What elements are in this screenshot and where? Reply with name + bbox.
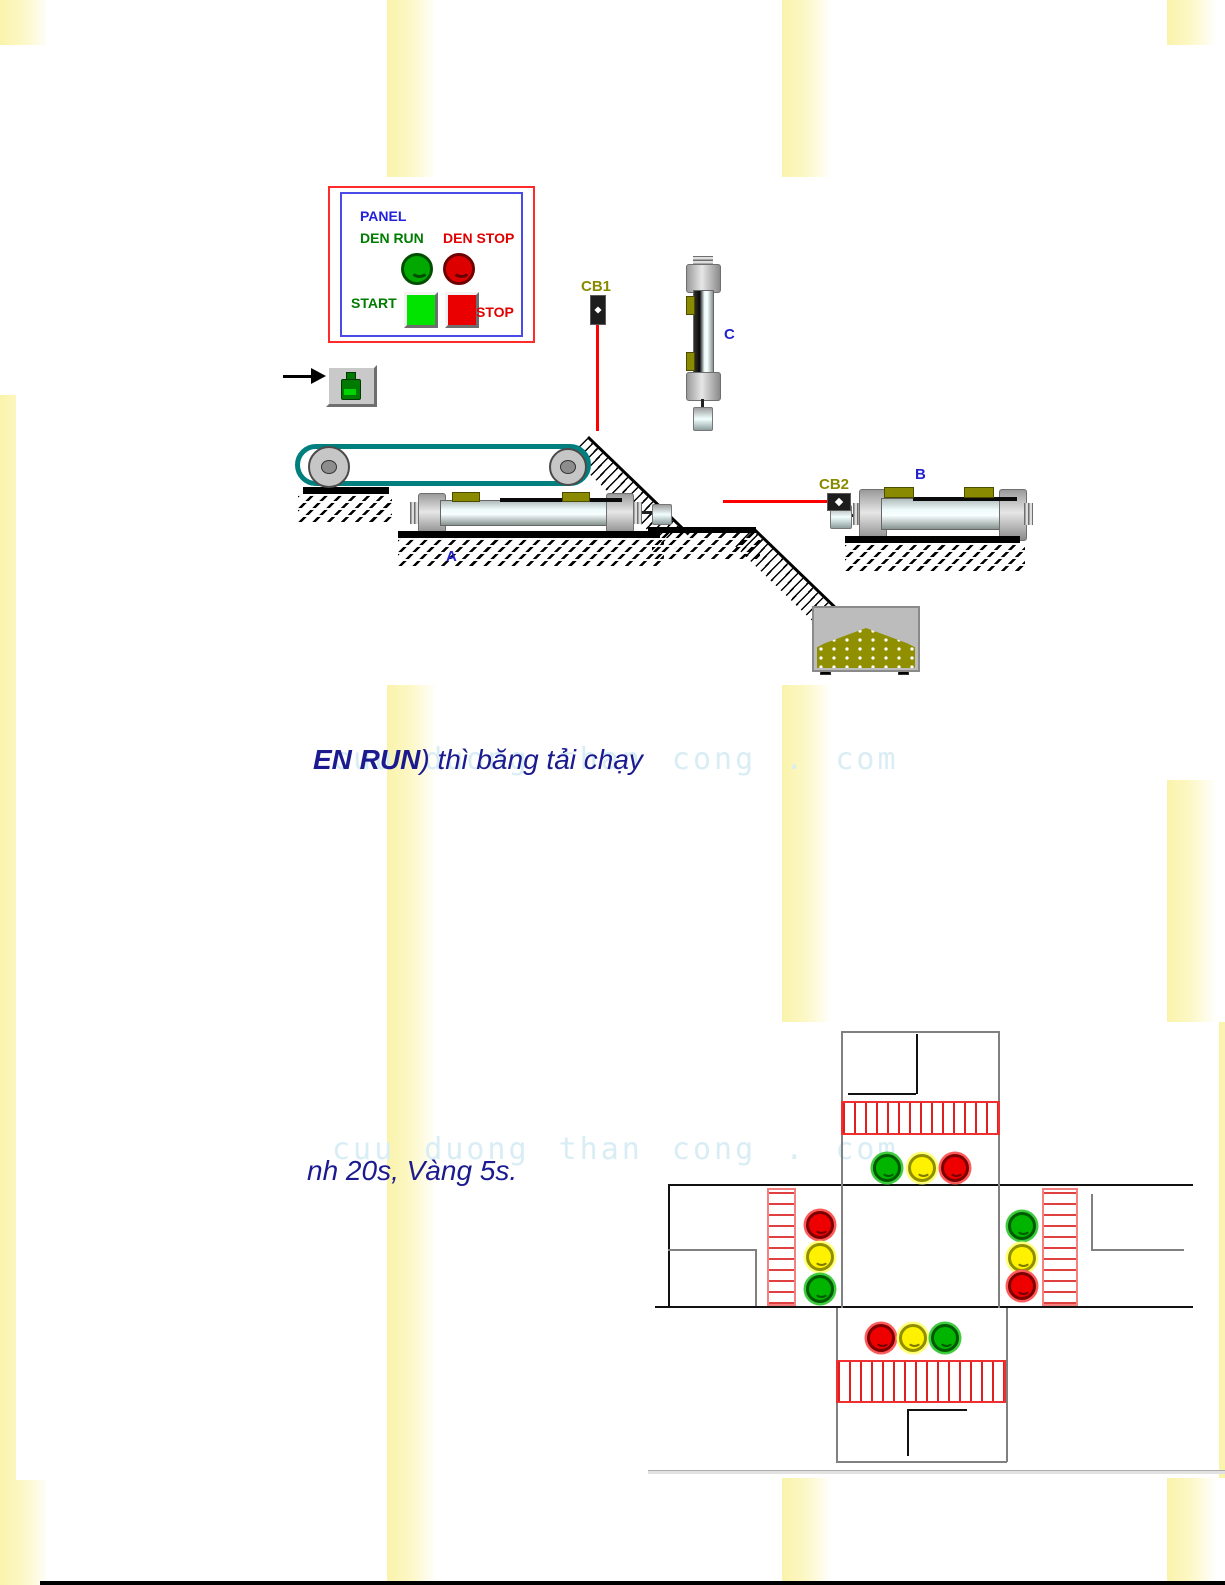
feed-product-button[interactable] <box>326 365 377 407</box>
sensor-eye <box>594 306 601 313</box>
building-corner <box>1091 1249 1184 1251</box>
cylinder-end-texture <box>1024 503 1033 525</box>
building-corner <box>1091 1194 1093 1249</box>
crosswalk-south <box>836 1360 1006 1403</box>
traffic-light-south-1 <box>867 1324 895 1352</box>
caption-traffic: nh 20s, Vàng 5s. <box>307 1155 517 1187</box>
road-edge <box>841 1031 998 1033</box>
traffic-light-east-3 <box>1008 1272 1036 1300</box>
bg-stripe <box>782 685 830 1022</box>
bg-stripe <box>782 1478 830 1585</box>
traffic-light-west-3 <box>806 1275 834 1303</box>
building-corner <box>916 1034 918 1094</box>
belt-support <box>303 487 389 494</box>
belt-pulley-right <box>549 448 587 486</box>
road-edge <box>655 1306 1193 1308</box>
building-corner <box>907 1409 967 1411</box>
piston-rod-tip <box>652 504 672 525</box>
bg-stripe <box>387 0 437 177</box>
pulley-hub <box>560 460 576 474</box>
page-divider <box>648 1470 1225 1474</box>
piston-rod-tip <box>693 407 713 431</box>
cylinder-clip <box>964 487 994 498</box>
chute-ledge <box>648 527 756 533</box>
ground-hatch <box>398 538 664 566</box>
caption-conveyor: EN RUN) thì băng tải chạy <box>313 744 643 776</box>
road-edge <box>1006 1308 1008 1462</box>
cylinder-b <box>853 489 1033 539</box>
feed-arrow-head <box>311 368 326 384</box>
panel-title: PANEL <box>360 208 406 224</box>
cylinder-clip <box>452 492 480 502</box>
road-edge <box>668 1184 1193 1186</box>
intersection-boundary <box>998 1184 1000 1308</box>
building-corner <box>755 1249 757 1306</box>
traffic-light-west-1 <box>806 1211 834 1239</box>
start-button[interactable] <box>404 292 438 328</box>
pulley-hub <box>321 460 337 474</box>
sensor-cb2-label: CB2 <box>819 476 849 493</box>
bottle-icon-label <box>344 389 356 395</box>
traffic-light-north-2 <box>908 1154 936 1182</box>
road-edge <box>668 1184 670 1308</box>
traffic-light-west-2 <box>806 1243 834 1271</box>
bg-stripe <box>1167 1478 1225 1585</box>
start-button-label: START <box>351 295 397 311</box>
crosswalk-east <box>1042 1188 1078 1306</box>
building-corner <box>848 1093 916 1095</box>
traffic-light-south-3 <box>931 1324 959 1352</box>
ground-hatch <box>298 494 392 522</box>
cylinder-c <box>681 256 725 434</box>
bg-stripe <box>1219 1022 1225 1478</box>
cylinder-a-label: A <box>446 548 457 565</box>
control-panel: PANEL DEN RUN DEN STOP START STOP <box>328 186 535 343</box>
cylinder-clip <box>884 487 914 498</box>
stop-button[interactable] <box>445 292 479 328</box>
building-corner <box>907 1409 909 1456</box>
collection-bin <box>812 606 920 672</box>
cylinder-a <box>410 493 642 533</box>
cylinder-tube <box>440 500 612 526</box>
cylinder-end-texture <box>633 502 642 524</box>
bg-stripe <box>0 395 16 1480</box>
cylinder-tube <box>881 498 1005 530</box>
cylinder-clip <box>562 492 590 502</box>
belt-pulley-left <box>308 446 350 488</box>
sensor-cb2-beam <box>723 500 828 503</box>
bg-stripe <box>0 0 46 45</box>
sensor-eye <box>835 498 843 506</box>
road-edge <box>836 1461 1007 1463</box>
caption-conveyor-rest: ) thì băng tải chạy <box>420 744 643 775</box>
ground-bar <box>398 531 660 538</box>
crosswalk-west <box>767 1188 796 1306</box>
cylinder-cap <box>686 264 721 293</box>
sensor-cb2-icon <box>827 493 851 511</box>
stop-button-label: STOP <box>476 304 514 320</box>
intersection-boundary <box>841 1184 843 1308</box>
feed-arrow <box>283 375 313 378</box>
cylinder-clip <box>686 352 695 371</box>
bg-stripe <box>782 0 830 177</box>
traffic-light-east-2 <box>1008 1244 1036 1272</box>
ground-hatch <box>845 543 1025 571</box>
sensor-cb1-label: CB1 <box>581 278 611 295</box>
stop-lamp-label: DEN STOP <box>443 230 514 246</box>
cylinder-clip <box>686 296 695 315</box>
sensor-cb1-beam <box>596 324 599 431</box>
bg-stripe <box>1167 780 1225 1022</box>
bin-material <box>817 628 915 668</box>
caption-conveyor-bold: EN RUN <box>313 744 420 775</box>
traffic-light-south-2 <box>899 1324 927 1352</box>
traffic-light-east-1 <box>1008 1212 1036 1240</box>
run-indicator-lamp <box>401 253 433 285</box>
sensor-cb1-icon <box>590 295 606 325</box>
cylinder-tube <box>693 290 714 374</box>
crosswalk-north <box>841 1101 1000 1135</box>
ground-bar <box>845 536 1020 543</box>
cylinder-c-label: C <box>724 326 735 343</box>
cylinder-stripe <box>500 498 622 502</box>
bg-stripe <box>1167 0 1225 45</box>
cylinder-cap <box>686 372 721 401</box>
traffic-light-north-1 <box>873 1154 901 1182</box>
traffic-light-north-3 <box>941 1154 969 1182</box>
bg-stripe <box>0 1480 46 1585</box>
building-corner <box>668 1249 755 1251</box>
stop-indicator-lamp <box>443 253 475 285</box>
window-bottom-edge <box>40 1581 1225 1585</box>
document-page: cuu duong than cong . com cuu duong than… <box>0 0 1225 1585</box>
run-lamp-label: DEN RUN <box>360 230 424 246</box>
cylinder-b-label: B <box>915 466 926 483</box>
